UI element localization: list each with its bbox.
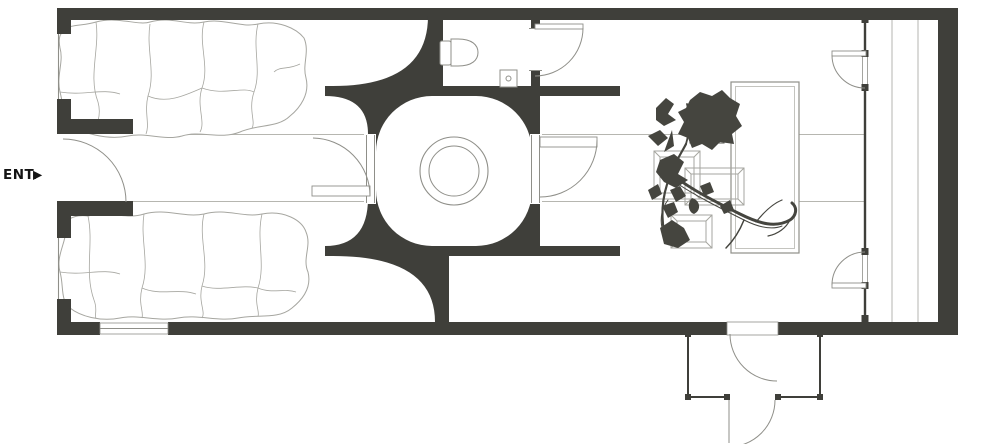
bench-strip-lines [892, 20, 918, 322]
partition-door-lower-arc [832, 252, 865, 285]
vestibule-post [724, 394, 730, 400]
central-room-walls [368, 86, 540, 256]
wall-band-lower [325, 246, 620, 256]
entrance-door-arc [63, 139, 126, 202]
vestibule-inner-door-arc [730, 334, 777, 381]
vestibule-post [685, 331, 691, 337]
floor-drain-icon [500, 70, 517, 87]
vestibule-post [685, 394, 691, 400]
wall-left-c [57, 201, 71, 238]
toilet-bowl-icon [451, 39, 478, 66]
wall-right [938, 8, 958, 335]
entrance-arrow-icon: ▶ [33, 168, 43, 182]
partition-door-lower-leaf [832, 283, 866, 288]
entry-stub-upper [57, 119, 133, 134]
wall-top [57, 8, 958, 20]
vestibule [685, 322, 823, 444]
central-west-door-leaf [312, 186, 370, 196]
vestibule-post [817, 394, 823, 400]
toilet-tank-icon [440, 41, 451, 65]
partition-door-upper-arc [832, 55, 865, 88]
central-east-door-arc [540, 140, 597, 197]
wall-left-d [57, 299, 71, 335]
central-east-door-leaf [540, 137, 597, 147]
central-round-table [420, 137, 488, 205]
partition-node [862, 16, 869, 23]
floor-plan-svg: ENT. ▶ [0, 0, 1000, 444]
vestibule-outer-door-arc [728, 400, 775, 444]
vestibule-post [775, 394, 781, 400]
partition-door-upper-leaf [832, 51, 866, 56]
glass-partition [832, 16, 918, 322]
partition-node [862, 315, 869, 322]
wall-bottom-c [777, 322, 938, 335]
wc-door-leaf [535, 24, 583, 29]
floor-plan-canvas: ENT. ▶ [0, 0, 1000, 444]
wc-door-opening [528, 28, 543, 71]
wall-left-a [57, 8, 71, 34]
rock-garden-lower [59, 212, 309, 319]
vestibule-wall-opening [727, 322, 778, 335]
vestibule-post [817, 331, 823, 337]
wc-fixtures [440, 39, 517, 87]
